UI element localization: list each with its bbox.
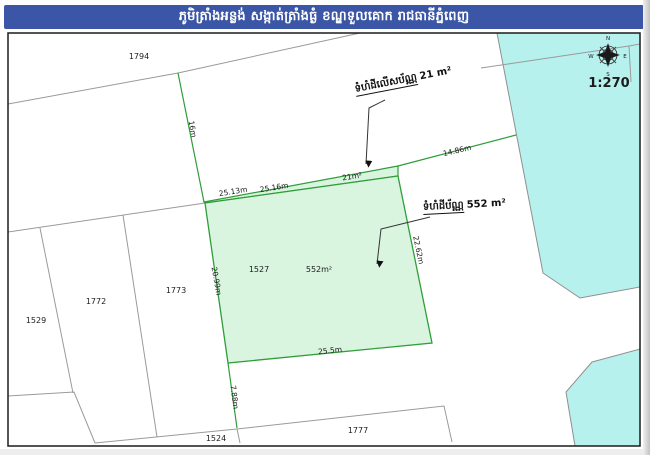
map-scale-label: 1:270 xyxy=(588,76,629,91)
parcel-label-1524: 1524 xyxy=(206,434,226,443)
map-svg: 25.13m 25.16m 21m² 14.86m 16m 20.99m 22.… xyxy=(0,0,650,455)
parcel-label-1773: 1773 xyxy=(166,286,186,295)
parcel-label-1772: 1772 xyxy=(86,297,106,306)
cadastral-map: 25.13m 25.16m 21m² 14.86m 16m 20.99m 22.… xyxy=(0,0,650,455)
parcel-label-1527: 1527 xyxy=(249,265,269,274)
compass-east-label: E xyxy=(623,54,627,60)
page-right-edge xyxy=(643,0,650,455)
compass-west-label: W xyxy=(588,54,594,60)
compass-north-label: N xyxy=(606,36,610,42)
parcel-label-1794: 1794 xyxy=(129,52,149,61)
page: ភូមិត្រាំងអន្លង់ សង្កាត់ត្រាំងធ្ងំ ខណ្ឌទ… xyxy=(0,0,650,455)
page-bottom-edge xyxy=(0,449,646,455)
annotation-title-area-value: 552 m² xyxy=(466,198,506,211)
parcel-area-552: 552m² xyxy=(306,265,332,274)
parcel-label-1777: 1777 xyxy=(348,426,368,435)
parcel-label-1529: 1529 xyxy=(26,316,46,325)
annotation-title-area-label: ទំហំដីប័ណ្ណ xyxy=(423,200,464,215)
